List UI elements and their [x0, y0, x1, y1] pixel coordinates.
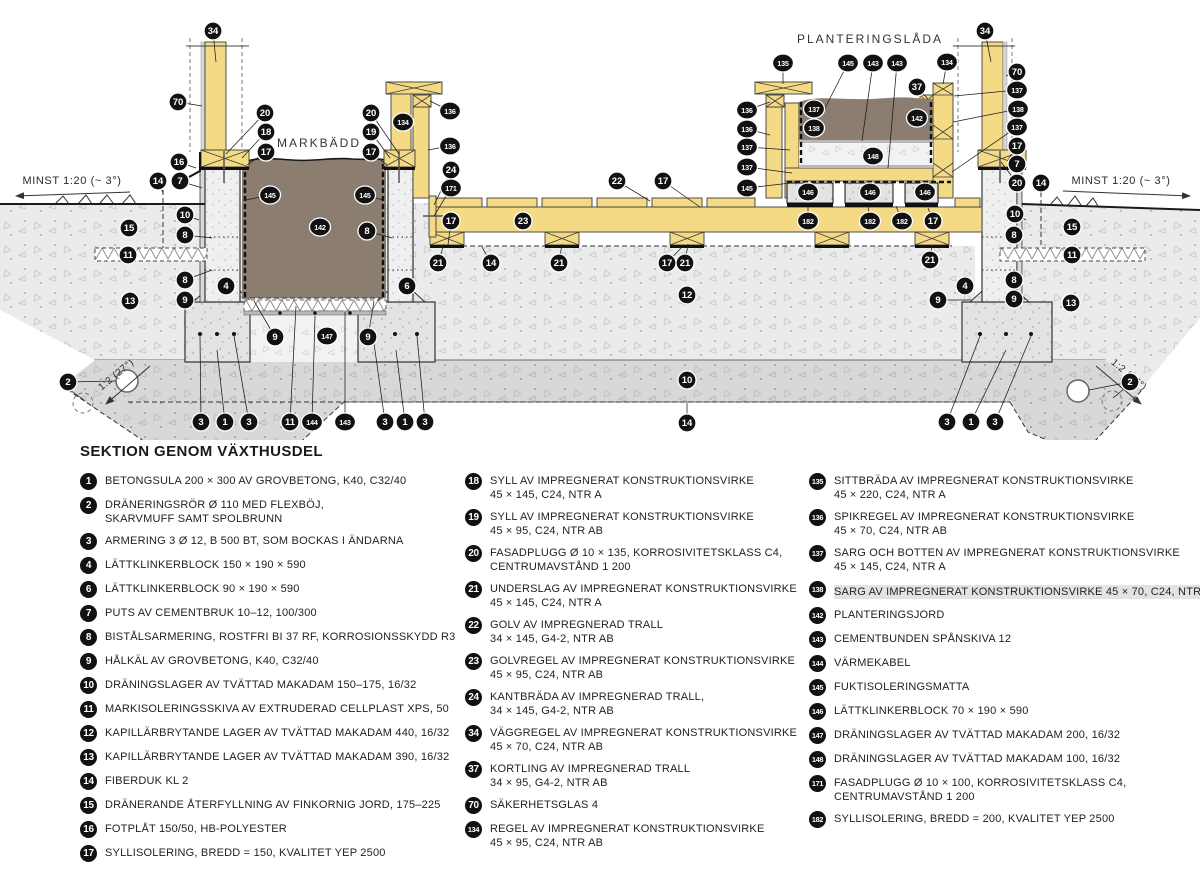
callout-138: 138	[804, 119, 825, 137]
legend-line: FIBERDUK KL 2	[105, 774, 452, 788]
callout-number: 70	[173, 97, 184, 108]
legend-text: ARMERING 3 Ø 12, B 500 BT, SOM BOCKAS I …	[105, 534, 452, 548]
legend-badge: 138	[809, 581, 826, 598]
legend-item-4: 4LÄTTKLINKERBLOCK 150 × 190 × 590	[80, 558, 452, 574]
legend-badge: 19	[465, 509, 482, 526]
legend-line: SYLL AV IMPREGNERAT KONSTRUKTIONSVIRKE	[490, 474, 810, 488]
legend-text: SITTBRÄDA AV IMPREGNERAT KONSTRUKTIONSVI…	[834, 474, 1200, 502]
legend-badge: 20	[465, 545, 482, 562]
botten-137	[785, 168, 953, 181]
legend-badge: 8	[80, 629, 97, 646]
legend-line: VÄGGREGEL AV IMPREGNERAT KONSTRUKTIONSVI…	[490, 726, 810, 740]
callout-21: 21	[921, 251, 939, 269]
callout-2: 2	[1121, 373, 1139, 391]
callout-number: 10	[1010, 209, 1021, 220]
callout-number: 11	[123, 250, 134, 261]
legend-line: HÅLKÄL AV GROVBETONG, K40, C32/40	[105, 654, 452, 668]
legend-column-1: 1BETONGSULA 200 × 300 AV GROVBETONG, K40…	[80, 474, 452, 870]
minst-arrow-right	[1063, 191, 1190, 196]
callout-number: 136	[741, 106, 753, 115]
callout-number: 145	[842, 59, 854, 68]
legend-badge: 136	[809, 509, 826, 526]
legend-line: 45 × 70, C24, NTR AB	[490, 740, 810, 754]
sittbrada-135	[386, 82, 442, 94]
callout-9: 9	[1005, 290, 1023, 308]
callout-number: 19	[366, 127, 377, 138]
legend-line: SARG OCH BOTTEN AV IMPREGNERAT KONSTRUKT…	[834, 546, 1200, 560]
callout-number: 8	[364, 226, 369, 237]
callout-142: 142	[907, 109, 928, 127]
callout-number: 34	[980, 26, 991, 37]
callout-145: 145	[260, 186, 281, 204]
callout-number: 9	[365, 332, 370, 343]
minst-arrow-left	[16, 192, 130, 196]
legend-text: FOTPLÅT 150/50, HB-POLYESTER	[105, 822, 452, 836]
callout-number: 14	[486, 258, 497, 269]
callout-number: 143	[891, 59, 903, 68]
callout-number: 21	[925, 255, 936, 266]
callout-8: 8	[176, 226, 194, 244]
legend-badge: 182	[809, 811, 826, 828]
legend-line: KORTLING AV IMPREGNERAD TRALL	[490, 762, 810, 776]
callout-146: 146	[860, 183, 881, 201]
legend-line: FASADPLUGG Ø 10 × 100, KORROSIVITETSKLAS…	[834, 776, 1200, 790]
callout-17: 17	[362, 143, 380, 161]
legend-badge: 24	[465, 689, 482, 706]
legend-line: SYLL AV IMPREGNERAT KONSTRUKTIONSVIRKE	[490, 510, 810, 524]
callout-9: 9	[359, 328, 377, 346]
callout-8: 8	[1005, 271, 1023, 289]
legend-line: VÄRMEKABEL	[834, 656, 1200, 670]
legend-text: BETONGSULA 200 × 300 AV GROVBETONG, K40,…	[105, 474, 452, 488]
spikregel-136-block	[766, 95, 784, 107]
callout-4: 4	[217, 277, 235, 295]
callout-number: 3	[198, 417, 203, 428]
legend-text: KAPILLÄRBRYTANDE LAGER AV TVÄTTAD MAKADA…	[105, 726, 452, 740]
callout-number: 11	[285, 417, 296, 428]
callout-number: 10	[180, 210, 191, 221]
legend-item-22: 22GOLV AV IMPREGNERAD TRALL34 × 145, G4-…	[465, 618, 810, 646]
callout-147: 147	[317, 327, 338, 345]
callout-number: 14	[682, 418, 693, 429]
callout-22: 22	[608, 172, 626, 190]
callout-146: 146	[915, 183, 936, 201]
sittbrada-135	[755, 82, 812, 94]
callout-number: 3	[992, 417, 997, 428]
legend-line: SPIKREGEL AV IMPREGNERAT KONSTRUKTIONSVI…	[834, 510, 1200, 524]
callout-number: 9	[182, 295, 187, 306]
legend-badge: 145	[809, 679, 826, 696]
callout-1: 1	[216, 413, 234, 431]
legend-item-8: 8BISTÅLSARMERING, ROSTFRI BI 37 RF, KORR…	[80, 630, 452, 646]
callout-number: 17	[662, 258, 673, 269]
legend-text: FIBERDUK KL 2	[105, 774, 452, 788]
callout-number: 1	[968, 417, 974, 428]
callout-37: 37	[908, 78, 926, 96]
legend-line: 45 × 70, C24, NTR AB	[834, 524, 1200, 538]
legend-line: 45 × 220, C24, NTR A	[834, 488, 1200, 502]
legend-text: PLANTERINGSJORD	[834, 608, 1200, 622]
legend-line: CENTRUMAVSTÅND 1 200	[490, 560, 810, 574]
legend-item-1: 1BETONGSULA 200 × 300 AV GROVBETONG, K40…	[80, 474, 452, 490]
callout-9: 9	[266, 328, 284, 346]
greenhouse-wall-left	[186, 38, 249, 183]
callout-number: 7	[1014, 159, 1019, 170]
legend-badge: 17	[80, 845, 97, 862]
callout-3: 3	[376, 413, 394, 431]
callout-136: 136	[440, 102, 461, 120]
legend-line: FUKTISOLERINGSMATTA	[834, 680, 1200, 694]
legend-badge: 146	[809, 703, 826, 720]
legend-badge: 3	[80, 533, 97, 550]
legend-item-148: 148DRÄNINGSLAGER AV TVÄTTAD MAKADAM 100,…	[809, 752, 1200, 768]
callout-16: 16	[170, 153, 188, 171]
legend-line: UNDERSLAG AV IMPREGNERAT KONSTRUKTIONSVI…	[490, 582, 810, 596]
callout-14: 14	[482, 254, 500, 272]
callout-number: 12	[682, 290, 693, 301]
callout-12: 12	[678, 286, 696, 304]
callout-8: 8	[358, 222, 376, 240]
callout-13: 13	[121, 292, 139, 310]
callout-20: 20	[1008, 174, 1026, 192]
callout-13: 13	[1062, 294, 1080, 312]
callout-number: 17	[261, 147, 272, 158]
legend-column-2: 18SYLL AV IMPREGNERAT KONSTRUKTIONSVIRKE…	[465, 474, 810, 858]
legend-text: DRÄNINGSLAGER AV TVÄTTAD MAKADAM 100, 16…	[834, 752, 1200, 766]
callout-4: 4	[956, 277, 974, 295]
legend-line: GOLVREGEL AV IMPREGNERAT KONSTRUKTIONSVI…	[490, 654, 810, 668]
ground-center	[430, 246, 975, 360]
legend-badge: 135	[809, 473, 826, 490]
callout-number: 20	[366, 108, 377, 119]
callout-137: 137	[804, 100, 825, 118]
legend-line: REGEL AV IMPREGNERAT KONSTRUKTIONSVIRKE	[490, 822, 810, 836]
callout-number: 8	[182, 230, 187, 241]
legend-item-137: 137SARG OCH BOTTEN AV IMPREGNERAT KONSTR…	[809, 546, 1200, 574]
legend-line: FOTPLÅT 150/50, HB-POLYESTER	[105, 822, 452, 836]
callout-number: 136	[444, 107, 456, 116]
page: MARKBÄDDPLANTERINGSLÅDAMINST 1:20 (~ 3°)…	[0, 0, 1200, 871]
callout-17: 17	[257, 143, 275, 161]
callout-number: 137	[808, 105, 820, 114]
legend-badge: 34	[465, 725, 482, 742]
callout-number: 8	[182, 275, 187, 286]
drawing-label: PLANTERINGSLÅDA	[797, 31, 943, 46]
callout-number: 182	[864, 217, 876, 226]
callout-14: 14	[1032, 174, 1050, 192]
callout-11: 11	[1063, 246, 1081, 264]
legend-item-136: 136SPIKREGEL AV IMPREGNERAT KONSTRUKTION…	[809, 510, 1200, 538]
callout-34: 34	[204, 22, 222, 40]
legend-item-24: 24KANTBRÄDA AV IMPREGNERAD TRALL,34 × 14…	[465, 690, 810, 718]
legend-text: DRÄNERANDE ÅTERFYLLNING AV FINKORNIG JOR…	[105, 798, 452, 812]
callout-number: 16	[174, 157, 185, 168]
legend-line: SYLLISOLERING, BREDD = 200, KVALITET YEP…	[834, 812, 1200, 826]
legend-text: FASADPLUGG Ø 10 × 100, KORROSIVITETSKLAS…	[834, 776, 1200, 804]
callout-number: 17	[366, 147, 377, 158]
callout-number: 15	[124, 223, 135, 234]
legend-badge: 11	[80, 701, 97, 718]
legend-line: 34 × 95, G4-2, NTR AB	[490, 776, 810, 790]
callout-number: 142	[314, 223, 326, 232]
legend-text: HÅLKÄL AV GROVBETONG, K40, C32/40	[105, 654, 452, 668]
legend-line: SÄKERHETSGLAS 4	[490, 798, 810, 812]
legend-badge: 2	[80, 497, 97, 514]
xps-left	[95, 248, 207, 261]
callout-number: 21	[680, 258, 691, 269]
legend-item-18: 18SYLL AV IMPREGNERAT KONSTRUKTIONSVIRKE…	[465, 474, 810, 502]
callout-17: 17	[658, 254, 676, 272]
legend-item-20: 20FASADPLUGG Ø 10 × 135, KORROSIVITETSKL…	[465, 546, 810, 574]
legend-text: SARG OCH BOTTEN AV IMPREGNERAT KONSTRUKT…	[834, 546, 1200, 574]
callout-number: 14	[153, 176, 164, 187]
legend-item-13: 13KAPILLÄRBRYTANDE LAGER AV TVÄTTAD MAKA…	[80, 750, 452, 766]
drawing-label: MINST 1:20 (~ 3°)	[1071, 175, 1170, 187]
legend-line: FASADPLUGG Ø 10 × 135, KORROSIVITETSKLAS…	[490, 546, 810, 560]
legend-line: 45 × 95, C24, NTR AB	[490, 836, 810, 850]
callout-1: 1	[962, 413, 980, 431]
callout-number: 13	[1066, 298, 1077, 309]
callout-number: 137	[1011, 123, 1023, 132]
callout-number: 3	[422, 417, 427, 428]
callout-number: 3	[246, 417, 251, 428]
callout-17: 17	[924, 212, 942, 230]
callout-number: 21	[433, 258, 444, 269]
callout-134: 134	[937, 53, 958, 71]
callout-number: 8	[1011, 230, 1016, 241]
callout-20: 20	[256, 104, 274, 122]
callout-number: 3	[944, 417, 949, 428]
legend-line: SITTBRÄDA AV IMPREGNERAT KONSTRUKTIONSVI…	[834, 474, 1200, 488]
callout-18: 18	[257, 123, 275, 141]
callout-142: 142	[310, 218, 331, 236]
glass-70	[201, 42, 205, 150]
legend-item-138: 138SARG AV IMPREGNERAT KONSTRUKTIONSVIRK…	[809, 582, 1200, 600]
legend-text: VÄRMEKABEL	[834, 656, 1200, 670]
legend-item-23: 23GOLVREGEL AV IMPREGNERAT KONSTRUKTIONS…	[465, 654, 810, 682]
legend-line: 45 × 145, C24, NTR A	[490, 596, 810, 610]
legend-item-146: 146LÄTTKLINKERBLOCK 70 × 190 × 590	[809, 704, 1200, 720]
callout-70: 70	[169, 93, 187, 111]
legend-item-70: 70SÄKERHETSGLAS 4	[465, 798, 810, 814]
legend-text: SYLLISOLERING, BREDD = 200, KVALITET YEP…	[834, 812, 1200, 826]
callout-number: 137	[741, 163, 753, 172]
callout-21: 21	[550, 254, 568, 272]
legend-text: REGEL AV IMPREGNERAT KONSTRUKTIONSVIRKE4…	[490, 822, 810, 850]
callout-8: 8	[176, 271, 194, 289]
legend-badge: 6	[80, 581, 97, 598]
legend-badge: 148	[809, 751, 826, 768]
legend-line: 34 × 145, G4-2, NTR AB	[490, 632, 810, 646]
legend-text: FUKTISOLERINGSMATTA	[834, 680, 1200, 694]
callout-number: 136	[741, 125, 753, 134]
callout-137: 137	[1007, 118, 1028, 136]
callout-137: 137	[1007, 81, 1028, 99]
legend-title: SEKTION GENOM VÄXTHUSDEL	[80, 443, 323, 460]
legend-text: UNDERSLAG AV IMPREGNERAT KONSTRUKTIONSVI…	[490, 582, 810, 610]
callout-21: 21	[676, 254, 694, 272]
spikregel-136-block	[413, 95, 431, 107]
legend-line: LÄTTKLINKERBLOCK 70 × 190 × 590	[834, 704, 1200, 718]
legend-badge: 23	[465, 653, 482, 670]
callout-number: 3	[382, 417, 387, 428]
callout-number: 1	[402, 417, 408, 428]
legend-badge: 12	[80, 725, 97, 742]
callout-number: 145	[741, 184, 753, 193]
legend-text: KORTLING AV IMPREGNERAD TRALL34 × 95, G4…	[490, 762, 810, 790]
callout-14: 14	[678, 414, 696, 432]
legend-text: KANTBRÄDA AV IMPREGNERAD TRALL,34 × 145,…	[490, 690, 810, 718]
legend-badge: 1	[80, 473, 97, 490]
callout-23: 23	[514, 212, 532, 230]
legend-line: SYLLISOLERING, BREDD = 150, KVALITET YEP…	[105, 846, 452, 860]
callout-6: 6	[398, 277, 416, 295]
callout-number: 137	[741, 143, 753, 152]
legend-line: KANTBRÄDA AV IMPREGNERAD TRALL,	[490, 690, 810, 704]
section-drawing: MARKBÄDDPLANTERINGSLÅDAMINST 1:20 (~ 3°)…	[0, 0, 1200, 440]
legend-item-144: 144VÄRMEKABEL	[809, 656, 1200, 672]
grass-left	[55, 195, 136, 204]
legend-item-21: 21UNDERSLAG AV IMPREGNERAT KONSTRUKTIONS…	[465, 582, 810, 610]
callout-number: 11	[1067, 250, 1078, 261]
underslag-blocks	[430, 232, 949, 245]
callout-number: 145	[264, 191, 276, 200]
callout-number: 9	[1011, 294, 1016, 305]
legend-line: DRÄNINGSLAGER AV TVÄTTAD MAKADAM 150–175…	[105, 678, 452, 692]
legend-text: DRÄNINGSLAGER AV TVÄTTAD MAKADAM 150–175…	[105, 678, 452, 692]
callout-136: 136	[737, 120, 758, 138]
callout-number: 144	[306, 418, 318, 427]
syllisolering-182	[787, 203, 938, 207]
legend-badge: 143	[809, 631, 826, 648]
legend-badge: 70	[465, 797, 482, 814]
fotplat-16	[189, 152, 200, 177]
legend-badge: 37	[465, 761, 482, 778]
legend-line: 45 × 145, C24, NTR A	[834, 560, 1200, 574]
legend-item-134: 134REGEL AV IMPREGNERAT KONSTRUKTIONSVIR…	[465, 822, 810, 850]
legend-line: PUTS AV CEMENTBRUK 10–12, 100/300	[105, 606, 452, 620]
legend-text: MARKISOLERINGSSKIVA AV EXTRUDERAD CELLPL…	[105, 702, 452, 716]
callout-number: 21	[554, 258, 565, 269]
callout-34: 34	[976, 22, 994, 40]
callout-number: 2	[65, 377, 70, 388]
callout-number: 142	[911, 114, 923, 123]
legend-line: 45 × 95, C24, NTR AB	[490, 668, 810, 682]
legend-badge: 147	[809, 727, 826, 744]
callout-3: 3	[938, 413, 956, 431]
drawing-label: MARKBÄDD	[277, 136, 361, 150]
legend-item-182: 182SYLLISOLERING, BREDD = 200, KVALITET …	[809, 812, 1200, 828]
spanskiva-143-lower	[799, 165, 933, 168]
legend-badge: 7	[80, 605, 97, 622]
legend-item-16: 16FOTPLÅT 150/50, HB-POLYESTER	[80, 822, 452, 838]
callout-15: 15	[1063, 218, 1081, 236]
callout-number: 22	[612, 176, 623, 187]
legend-text: SÄKERHETSGLAS 4	[490, 798, 810, 812]
footing-right	[962, 302, 1052, 362]
legend-item-15: 15DRÄNERANDE ÅTERFYLLNING AV FINKORNIG J…	[80, 798, 452, 814]
legend-item-9: 9HÅLKÄL AV GROVBETONG, K40, C32/40	[80, 654, 452, 670]
legend-item-135: 135SITTBRÄDA AV IMPREGNERAT KONSTRUKTION…	[809, 474, 1200, 502]
callout-number: 146	[864, 188, 876, 197]
legend-item-147: 147DRÄNINGSLAGER AV TVÄTTAD MAKADAM 200,…	[809, 728, 1200, 744]
legend-item-12: 12KAPILLÄRBRYTANDE LAGER AV TVÄTTAD MAKA…	[80, 726, 452, 742]
callout-number: 138	[1012, 105, 1024, 114]
legend-text: SPIKREGEL AV IMPREGNERAT KONSTRUKTIONSVI…	[834, 510, 1200, 538]
spanskiva-143-upper	[799, 140, 933, 143]
callout-137: 137	[737, 158, 758, 176]
callout-10: 10	[678, 371, 696, 389]
callout-number: 138	[808, 124, 820, 133]
callout-number: 182	[896, 217, 908, 226]
legend-text: LÄTTKLINKERBLOCK 90 × 190 × 590	[105, 582, 452, 596]
callout-137: 137	[737, 138, 758, 156]
callout-145: 145	[838, 54, 859, 72]
legend-badge: 9	[80, 653, 97, 670]
callout-number: 182	[802, 217, 814, 226]
callout-143: 143	[887, 54, 908, 72]
legend-item-10: 10DRÄNINGSLAGER AV TVÄTTAD MAKADAM 150–1…	[80, 678, 452, 694]
callout-number: 143	[867, 59, 879, 68]
callout-17: 17	[442, 212, 460, 230]
vaggregel-34	[982, 42, 1003, 150]
callout-11: 11	[119, 246, 137, 264]
drawing-label: MINST 1:20 (~ 3°)	[22, 175, 121, 187]
callout-number: 143	[339, 418, 351, 427]
callout-number: 147	[321, 332, 333, 341]
callout-number: 17	[446, 216, 457, 227]
legend-line: GOLV AV IMPREGNERAD TRALL	[490, 618, 810, 632]
callout-number: 145	[359, 191, 371, 200]
callout-number: 136	[444, 142, 456, 151]
legend-line: SKARVMUFF SAMT SPOLBRUNN	[105, 512, 452, 526]
legend-badge: 144	[809, 655, 826, 672]
callout-number: 15	[1067, 222, 1078, 233]
legend-text: LÄTTKLINKERBLOCK 70 × 190 × 590	[834, 704, 1200, 718]
callout-136: 136	[440, 137, 461, 155]
syll-18	[201, 150, 249, 170]
legend-line: MARKISOLERINGSSKIVA AV EXTRUDERAD CELLPL…	[105, 702, 452, 716]
legend-text: FASADPLUGG Ø 10 × 135, KORROSIVITETSKLAS…	[490, 546, 810, 574]
legend-line: DRÄNINGSLAGER AV TVÄTTAD MAKADAM 200, 16…	[834, 728, 1200, 742]
legend-line: LÄTTKLINKERBLOCK 90 × 190 × 590	[105, 582, 452, 596]
legend-badge: 16	[80, 821, 97, 838]
legend-text: GOLVREGEL AV IMPREGNERAT KONSTRUKTIONSVI…	[490, 654, 810, 682]
legend-text: LÄTTKLINKERBLOCK 150 × 190 × 590	[105, 558, 452, 572]
legend-item-143: 143CEMENTBUNDEN SPÅNSKIVA 12	[809, 632, 1200, 648]
callout-143: 143	[335, 413, 356, 431]
legend-line: SARG AV IMPREGNERAT KONSTRUKTIONSVIRKE 4…	[834, 585, 1200, 599]
callout-14: 14	[149, 172, 167, 190]
callout-11: 11	[281, 413, 299, 431]
callout-9: 9	[176, 291, 194, 309]
legend-text: GOLV AV IMPREGNERAD TRALL34 × 145, G4-2,…	[490, 618, 810, 646]
legend-item-34: 34VÄGGREGEL AV IMPREGNERAT KONSTRUKTIONS…	[465, 726, 810, 754]
legend-line: PLANTERINGSJORD	[834, 608, 1200, 622]
callout-number: 70	[1012, 67, 1023, 78]
legend-item-14: 14FIBERDUK KL 2	[80, 774, 452, 790]
callout-number: 137	[1011, 86, 1023, 95]
callout-17: 17	[1008, 137, 1026, 155]
drain-pipe-right	[1067, 380, 1089, 402]
legend-text: SYLL AV IMPREGNERAT KONSTRUKTIONSVIRKE45…	[490, 474, 810, 502]
legend-line: 34 × 145, G4-2, NTR AB	[490, 704, 810, 718]
deck-boards-22	[432, 198, 980, 207]
legend-badge: 14	[80, 773, 97, 790]
callout-number: 146	[919, 188, 931, 197]
legend-line: CENTRUMAVSTÅND 1 200	[834, 790, 1200, 804]
legend-line: CEMENTBUNDEN SPÅNSKIVA 12	[834, 632, 1200, 646]
